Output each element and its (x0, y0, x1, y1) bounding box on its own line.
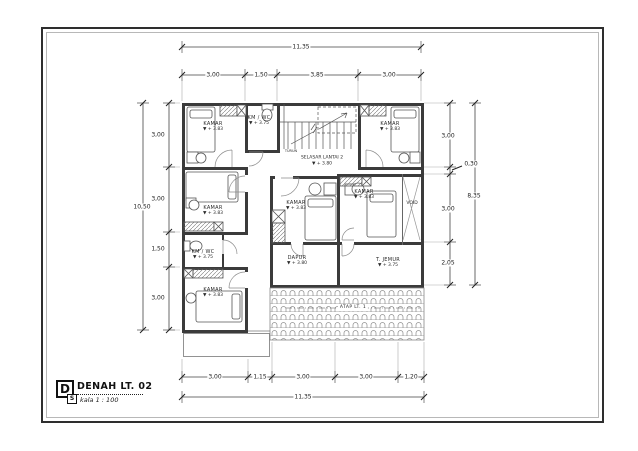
room-label-kamar-center: KAMAR ▼ + 3.83 (286, 200, 306, 212)
dim-top-seg-1: 3,00 (205, 72, 220, 79)
dim-top-seg-2: 1,50 (253, 72, 268, 79)
title-block: D DENAH LT. 02 S kala 1 : 100 (56, 375, 216, 411)
dim-right-seg-3: 3,00 (440, 206, 455, 213)
dim-right-seg-2: 0,30 (463, 161, 478, 168)
dim-bottom-seg-5: 1,20 (403, 374, 418, 381)
scale-letter-box: S (67, 394, 77, 404)
dim-left-seg-4: 3,00 (150, 295, 165, 302)
room-label-kamar-bottom-left: KAMAR ▼ + 3.83 (203, 287, 223, 299)
dim-top-seg-4: 3,00 (381, 72, 396, 79)
room-label-kamar-mid-right: KAMAR ▼ + 3.83 (354, 189, 374, 201)
roof-hatch (270, 288, 424, 340)
dim-bottom-seg-3: 3,00 (295, 374, 310, 381)
dim-top-seg-3: 3,85 (309, 72, 324, 79)
lower-ledge-outline (184, 334, 270, 357)
dim-top-total: 11,35 (291, 44, 310, 51)
room-label-kamar-mid-left: KAMAR ▼ + 3.83 (203, 205, 223, 217)
title-underline (77, 394, 143, 395)
void-cross (402, 174, 420, 245)
dim-right-seg-4: 2,05 (440, 260, 455, 267)
room-label-kamar-top-left: KAMAR ▼ + 3.83 (203, 121, 223, 133)
dim-right-seg-1: 3,00 (440, 133, 455, 140)
room-label-t-jemur: T. JEMUR ▼ + 3.75 (376, 257, 400, 269)
room-label-kamar-top-right: KAMAR ▼ + 3.83 (380, 121, 400, 133)
stairs-down-note: TURUN (285, 149, 297, 153)
dim-bottom-seg-2: 1,15 (252, 374, 267, 381)
room-label-dapur: DAPUR ▼ + 3.80 (287, 255, 307, 267)
stairs-icon (280, 104, 356, 149)
dim-bottom-seg-4: 3,00 (358, 374, 373, 381)
dim-bottom-total: 11,35 (293, 394, 312, 401)
room-label-atap-lt1: ATAP LT. 1 (338, 305, 368, 311)
dim-left-total: 10,50 (132, 204, 151, 211)
dim-left-seg-1: 3,00 (150, 132, 165, 139)
dim-left-seg-3: 1,50 (150, 246, 165, 253)
dim-left-seg-2: 3,00 (150, 196, 165, 203)
room-label-kmwc-left: KM / WC ▼ + 3.75 (192, 249, 215, 261)
room-label-selasar: SELASAR LANTAI 2 ▼ + 3.80 (301, 155, 343, 166)
drawing-scale: kala 1 : 100 (80, 396, 118, 404)
drawing-title: DENAH LT. 02 (77, 381, 152, 392)
dim-right-total: 8,35 (466, 193, 481, 200)
room-label-kmwc-top: KM / WC ▼ + 3.75 (248, 115, 271, 127)
room-label-void: VOID (406, 201, 417, 207)
